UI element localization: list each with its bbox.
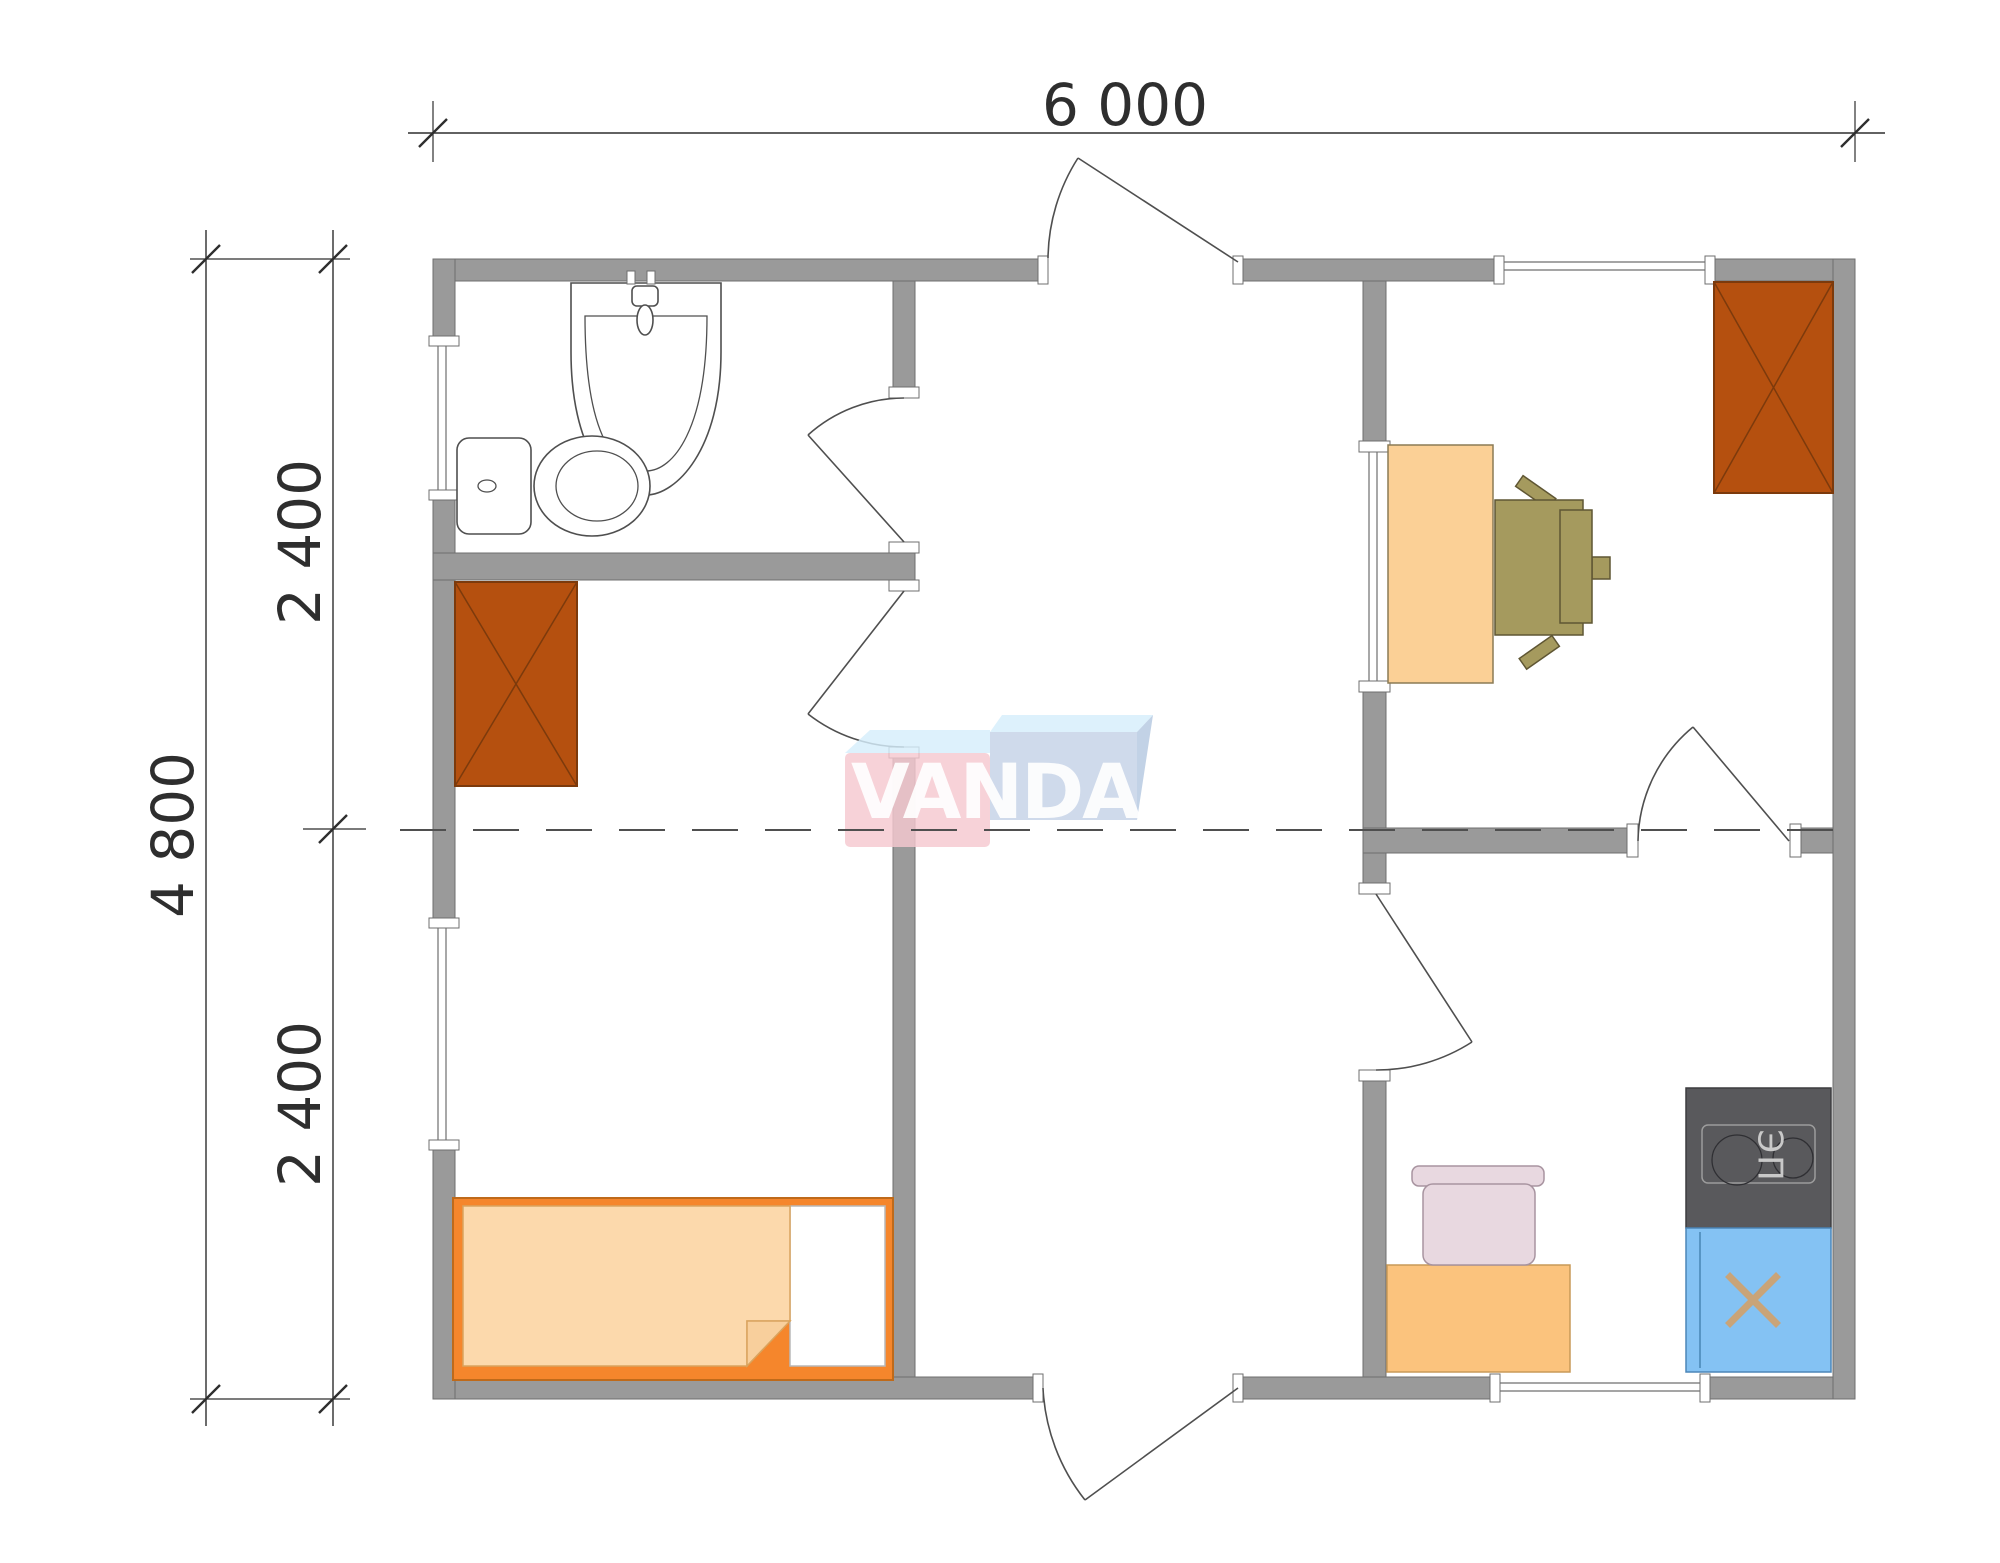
window-left-lower [429, 918, 459, 1150]
kitchen-sink-icon [1686, 1228, 1831, 1372]
wall-bathroom-south [433, 553, 915, 580]
bedroom-door [808, 591, 904, 747]
kitchen-door [1376, 894, 1472, 1070]
floor-plan-page: ЭП VANDA [0, 0, 2000, 1563]
stove-label: ЭП [1750, 1129, 1790, 1182]
desk [1388, 445, 1493, 683]
window-bottom [1490, 1374, 1710, 1402]
floor-plan: ЭП VANDA [0, 0, 2000, 1563]
office-door [1638, 727, 1789, 841]
dimension-left-upper-label: 2 400 [266, 459, 334, 625]
dimension-left-lower-label: 2 400 [266, 1021, 334, 1187]
stove-icon: ЭП [1686, 1088, 1831, 1228]
brand-logo: VANDA [845, 715, 1153, 847]
dimension-top: 6 000 [408, 71, 1885, 162]
dimension-top-label: 6 000 [1042, 71, 1208, 139]
back-door [1043, 1388, 1238, 1500]
dimension-left-total-label: 4 800 [139, 752, 207, 918]
wall-right [1833, 259, 1855, 1399]
wall-top-left [433, 259, 1038, 281]
bathroom-door [808, 398, 904, 542]
entrance-door [1048, 158, 1238, 262]
office-chair-icon [1495, 476, 1610, 670]
toilet-icon [457, 436, 650, 536]
kitchen-chair [1412, 1166, 1544, 1265]
dimension-left-split: 2 400 2 400 [190, 230, 350, 1426]
wardrobe-office [1714, 282, 1833, 493]
window-top [1494, 256, 1715, 284]
wardrobe-bedroom [455, 582, 577, 786]
window-left-upper [429, 336, 459, 500]
dimension-left-total: 4 800 [139, 230, 220, 1426]
kitchen-cabinet [1387, 1265, 1570, 1372]
brand-logo-text: VANDA [851, 747, 1141, 836]
bed [453, 1198, 893, 1380]
window-interior-office [1359, 441, 1390, 692]
